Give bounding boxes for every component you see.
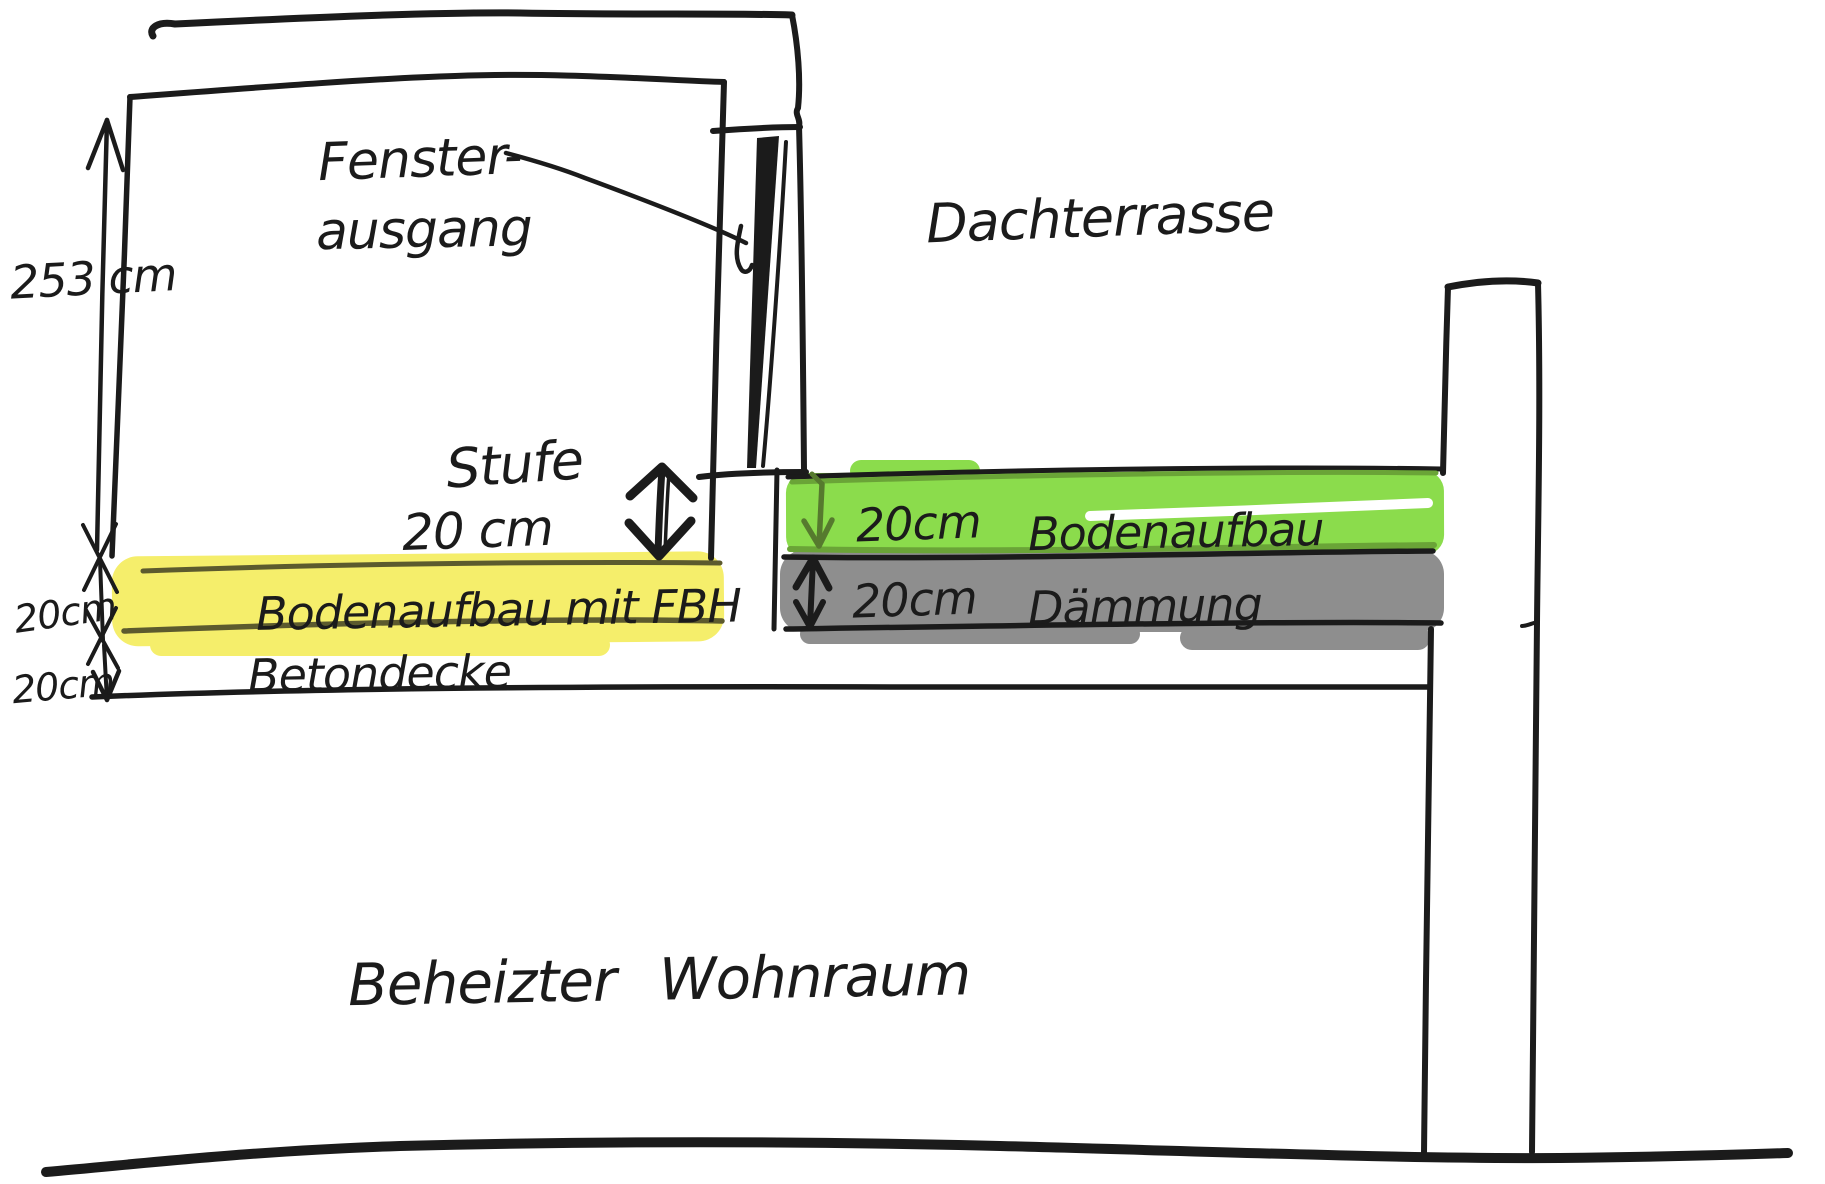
sketch-canvas: 253 cm Fenster- ausgang Dachterrasse Stu… <box>0 0 1825 1184</box>
window-exit-label-line2: ausgang <box>316 198 533 262</box>
height-dimension <box>83 120 123 592</box>
step-label: Stufe <box>444 428 585 500</box>
room-ceiling-line <box>130 75 724 97</box>
door-wall-outer-edge <box>792 15 804 470</box>
terrace-floor-label: Bodenaufbau <box>1028 502 1324 561</box>
step-size-label: 20 cm <box>401 499 554 562</box>
door-wall-inner-edge <box>711 82 724 558</box>
window-exit-label-line1: Fenster- <box>317 126 523 193</box>
height-dim-line <box>97 120 107 550</box>
step-dimension-arrow <box>629 467 693 556</box>
room-height-label: 253 cm <box>9 247 178 310</box>
heated-room-label: Beheizter Wohnraum <box>347 940 970 1019</box>
window-exit-arrow-hook <box>737 226 752 272</box>
window-lintel-line <box>713 127 800 131</box>
concrete-slab-label: Betondecke <box>248 644 512 703</box>
insulation-label: Dämmung <box>1028 577 1263 635</box>
window-exit-arrow <box>506 153 746 243</box>
insulation-dim-label: 20cm <box>851 570 977 628</box>
parapet-top-line <box>1448 281 1538 287</box>
roof-terrace-label: Dachterrasse <box>925 180 1275 255</box>
parapet-column-right-edge <box>1532 283 1539 1152</box>
roof-top-line <box>152 13 792 36</box>
ground-line <box>46 1142 1788 1172</box>
column-left-edge <box>1424 629 1431 1153</box>
step-face-line <box>774 470 777 629</box>
sketch-page: 253 cm Fenster- ausgang Dachterrasse Stu… <box>0 0 1825 1184</box>
terrace-floor-dim-label: 20cm <box>855 494 981 552</box>
parapet-left-edge <box>1443 287 1448 473</box>
slab-dim-label: 20cm <box>10 659 116 712</box>
step-arrow-shaft <box>658 470 662 552</box>
floor-heating-label: Bodenaufbau mit FBH <box>256 578 742 640</box>
